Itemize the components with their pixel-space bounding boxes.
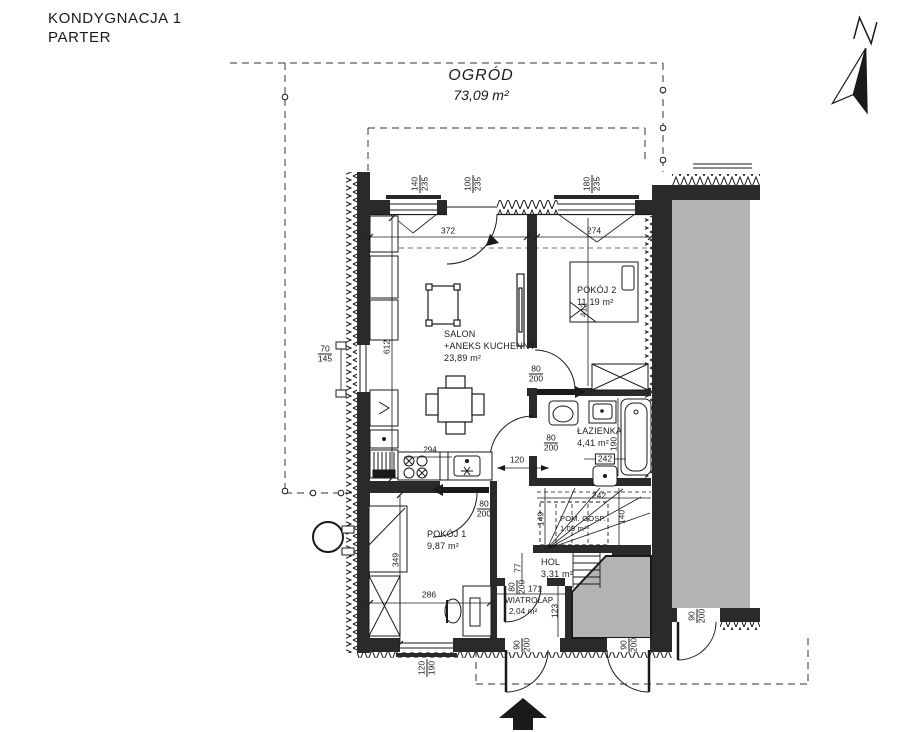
bedroom1-furniture: [369, 506, 491, 636]
dim-bed-length: 412: [580, 303, 589, 317]
dim-pokoj1-width: 286: [422, 591, 436, 600]
dim-window-bottom: 120190: [418, 659, 437, 677]
dim-salon-height: 612: [383, 340, 392, 354]
dim-wiatrolap-height: 123: [551, 604, 560, 618]
north-arrow-icon: [832, 17, 890, 113]
dim-door-lazienka: 80200: [544, 434, 558, 453]
entrance-arrow-icon: [499, 698, 547, 730]
dim-pokoj1-height: 349: [392, 553, 401, 567]
fence-lines: [693, 164, 752, 168]
dim-bath-width: 242: [595, 454, 615, 465]
dim-door-pokoj1: 80200: [477, 500, 491, 519]
floor-title-line1: KONDYGNACJA 1: [48, 10, 182, 27]
neighbor-unit: [672, 200, 750, 608]
room-label-pokoj1: POKÓJ 1 9,87 m²: [427, 528, 466, 552]
room-label-pom-gosp: POM. GOSP. 1,09 m²: [560, 514, 606, 534]
dim-pokoj2-width: 274: [587, 227, 601, 236]
dim-window-left: 70145: [318, 345, 332, 364]
room-label-wiatrolap: WIATROŁAP 2,04 m²: [505, 595, 553, 617]
understair-storage: [572, 556, 651, 638]
room-label-salon: SALON +ANEKS KUCHENNY 23,89 m²: [444, 328, 536, 364]
dim-salon-width: 372: [441, 227, 455, 236]
dim-corridor: 120: [510, 456, 524, 465]
plan-drawing: [0, 0, 913, 732]
floor-plan: KONDYGNACJA 1 PARTER OGRÓD 73,09 m² SALO…: [0, 0, 913, 732]
garden-area: 73,09 m²: [453, 87, 508, 103]
bedroom2-furniture: [570, 262, 648, 390]
dim-stairs-width: 242: [592, 492, 606, 501]
dim-window-top-2: 100235: [464, 175, 483, 193]
dim-door-neighbor: 90200: [688, 609, 707, 623]
dim-door-wiatrolap: 80200: [508, 580, 527, 594]
room-label-hol: HOL 3,31 m²: [541, 556, 573, 580]
dim-hol-height: 77: [514, 563, 523, 572]
dim-counter: 294: [423, 446, 436, 455]
dim-stairs-height: 140: [618, 510, 627, 524]
dim-door-storage: 90200: [620, 638, 639, 652]
dim-bath-height: 190: [610, 437, 619, 451]
dim-window-top-3: 180235: [583, 175, 602, 193]
dim-wiatrolap-width: 171: [528, 585, 542, 594]
dim-door-pokoj2: 80200: [529, 365, 543, 384]
dim-window-top-1: 140235: [411, 175, 430, 193]
floor-title-line2: PARTER: [48, 29, 111, 46]
dim-door-entrance: 90200: [513, 638, 532, 652]
dim-stairs-left: 149: [537, 512, 546, 526]
garden-label: OGRÓD: [448, 67, 513, 85]
